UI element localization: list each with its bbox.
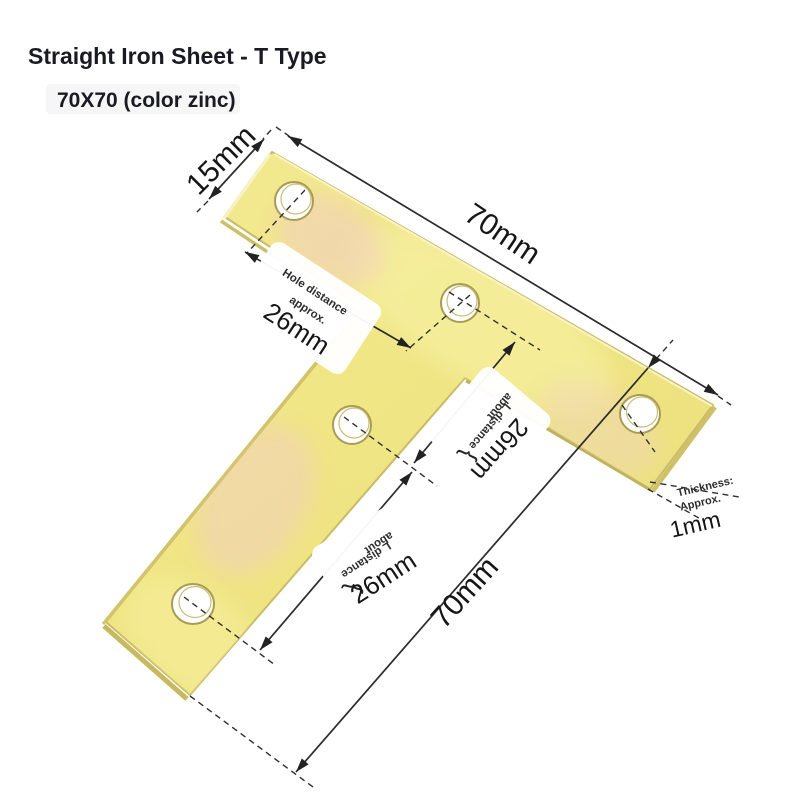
product-image: Hole distance approx. 26mm about L dista… [0, 0, 800, 800]
ext-15mm-bottom [197, 201, 208, 212]
thickness-annotation: Thickness: Approx. 1mm [667, 475, 734, 543]
thickness-value: 1mm [667, 506, 723, 543]
ext-70mm-left [276, 127, 289, 136]
page-subtitle: 70X70 (color zinc) [57, 89, 236, 112]
mounting-hole-5 [620, 395, 660, 433]
arrowhead [245, 252, 259, 263]
dim-70mm-height-label: 70mm [425, 551, 505, 635]
ext-15mm-top [263, 130, 271, 139]
dim-70mm-top-label: 70mm [459, 197, 547, 271]
arrowhead [288, 136, 302, 147]
ext-70mm-right [718, 396, 731, 405]
product-diagram: Hole distance approx. 26mm about L dista… [0, 0, 800, 800]
leg-tip-extension [190, 696, 313, 787]
page-title: Straight Iron Sheet - T Type [28, 43, 327, 69]
mounting-hole-3 [333, 406, 371, 444]
arrowhead [704, 384, 718, 395]
